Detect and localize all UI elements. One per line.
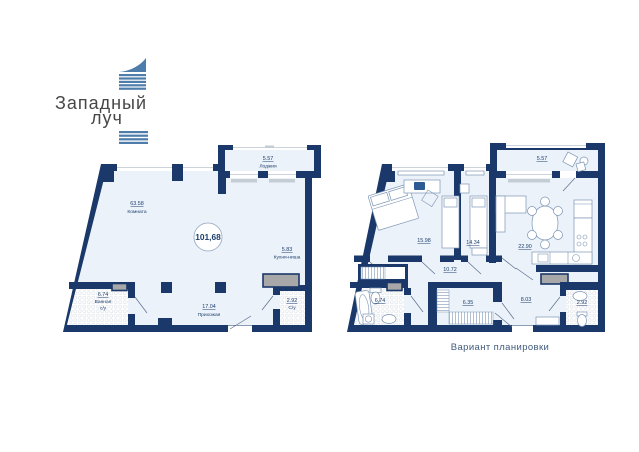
- chair: [554, 231, 563, 240]
- vent-shaft: [112, 284, 127, 291]
- desk-chair: [414, 182, 425, 190]
- room-name: Комната: [127, 209, 146, 215]
- vent-shaft: [387, 283, 402, 291]
- dresser: [472, 248, 487, 255]
- loggia-window: [233, 145, 307, 150]
- shelves: [437, 290, 449, 312]
- hall-name: Прихожая: [198, 312, 221, 318]
- label-bedroom1: 15.98: [417, 238, 431, 244]
- bathroom-name2: с/у: [100, 306, 107, 312]
- label-closet: 6.35: [463, 300, 474, 306]
- chair: [528, 207, 537, 216]
- bathroom-name: Ванная: [95, 299, 112, 305]
- wc-name: С/у: [288, 305, 296, 311]
- label-bedroom2: 14.34: [466, 240, 480, 246]
- label-hall: 10.72: [443, 267, 457, 273]
- corner-pier: [384, 171, 395, 182]
- bench: [536, 317, 559, 325]
- kitchen-name: Кухня-ниша: [274, 255, 301, 261]
- label-wc: 2.92: [577, 300, 588, 306]
- loggia-name: Лоджия: [259, 164, 277, 170]
- chair: [541, 197, 550, 206]
- label-total-area: 101,68: [194, 223, 222, 251]
- brand-logo: Западный луч: [45, 58, 157, 147]
- variant-caption: Вариант планировки: [360, 342, 639, 353]
- label-loggia: 5.57: [537, 156, 548, 162]
- fridge: [574, 200, 592, 218]
- chair: [554, 207, 563, 216]
- corner-pier: [103, 171, 114, 182]
- bedroom-windows: [392, 164, 486, 175]
- column: [158, 318, 172, 326]
- logo-sail-icon: [117, 58, 157, 92]
- sink: [382, 315, 396, 324]
- nightstand: [460, 184, 469, 193]
- chair: [541, 240, 550, 249]
- page: Западный луч: [0, 0, 639, 452]
- label-bath: 6.74: [375, 298, 386, 304]
- loggia-window: [506, 143, 586, 148]
- hall-wardrobe: [358, 264, 408, 282]
- kitchen-vent-shaft: [263, 274, 299, 287]
- column: [161, 282, 172, 293]
- label-living: 22.90: [518, 244, 532, 250]
- logo-title-line2: луч: [45, 111, 157, 126]
- label-entry: 8.03: [521, 297, 532, 303]
- total-area-value: 101,68: [195, 232, 221, 242]
- hanger-rod: [449, 312, 493, 324]
- chair: [528, 231, 537, 240]
- plan-original: 5.57 Лоджия 63.58 Комната 101,68 5.83 Ку…: [55, 138, 327, 340]
- plan-variant: 5.57 15.98 14.34 22.90 10.72 6.74 6.35: [340, 138, 612, 340]
- column: [215, 282, 226, 293]
